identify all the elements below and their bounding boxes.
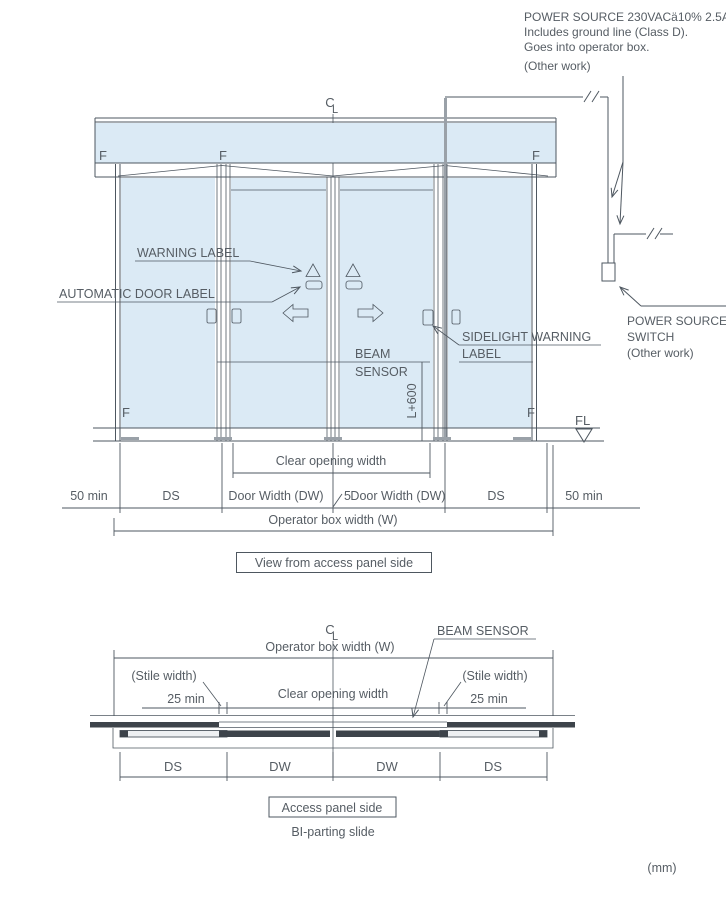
- margin-left-text: 50 min: [70, 489, 108, 503]
- glass-panels: [121, 178, 531, 428]
- clear-opening-text: Clear opening width: [276, 454, 387, 468]
- plan-left-door-leaf: [227, 731, 330, 738]
- power-note-line1: POWER SOURCE 230VACä10% 2.5A: [524, 10, 726, 24]
- plan-ds-left-text: DS: [164, 759, 182, 774]
- f-label-bottom-right: F: [527, 405, 535, 420]
- power-note-line4: (Other work): [524, 59, 591, 73]
- power-switch-box: [602, 263, 615, 281]
- plan-right-door-leaf: [336, 731, 440, 738]
- elevation-dimensions: Clear opening width 50 min DS Door Width…: [62, 443, 640, 536]
- power-switch-label-line3: (Other work): [627, 346, 694, 360]
- plan-ds-right-text: DS: [484, 759, 502, 774]
- stile-min-left-text: 25 min: [167, 692, 205, 706]
- automatic-door-installation-diagram: POWER SOURCE 230VACä10% 2.5A Includes gr…: [0, 0, 726, 903]
- plan-dimensions-bottom: DS DW DW DS: [120, 752, 547, 781]
- elevation-caption: View from access panel side: [237, 553, 432, 573]
- plan-subtitle-text: BI-parting slide: [291, 825, 374, 839]
- left-door-glass: [231, 178, 326, 428]
- wire-break-slash: [592, 91, 599, 102]
- plan-operator-box-text: Operator box width (W): [265, 640, 394, 654]
- plan-clear-opening-text: Clear opening width: [278, 687, 389, 701]
- plan-dimensions-top: Operator box width (W) (Stile width) 25 …: [114, 640, 553, 716]
- stile-leader-left: [203, 682, 221, 706]
- elevation-caption-text: View from access panel side: [255, 556, 413, 570]
- sidelight-end-cap: [120, 731, 128, 738]
- switch-label-leader: [620, 287, 641, 306]
- ds-left-text: DS: [162, 489, 179, 503]
- plan-beam-sensor-leader: [413, 639, 434, 717]
- plan-caption-text: Access panel side: [282, 801, 383, 815]
- ds-right-text: DS: [487, 489, 504, 503]
- plan-assembly: [90, 716, 575, 749]
- beam-height-text: L+600: [405, 383, 419, 418]
- dw-left-text: Door Width (DW): [228, 489, 323, 503]
- beam-sensor-text2: SENSOR: [355, 365, 408, 379]
- plan-view: C L BEAM SENSOR Operator box width (W) (…: [90, 622, 575, 839]
- plan-left-sidelight: [120, 731, 227, 738]
- margin-right-text: 50 min: [565, 489, 603, 503]
- stile-width-right-text: (Stile width): [462, 669, 527, 683]
- right-door-glass: [340, 178, 433, 428]
- power-note-line3: Goes into operator box.: [524, 40, 649, 54]
- beam-sensor-text1: BEAM: [355, 347, 390, 361]
- plan-dw-right-text: DW: [376, 759, 398, 774]
- right-sidelight-glass: [448, 178, 531, 428]
- automatic-door-label-text: AUTOMATIC DOOR LABEL: [59, 287, 215, 301]
- f-label-transom-left: F: [99, 148, 107, 163]
- plan-right-sidelight: [440, 731, 547, 738]
- sidelight-end-cap: [219, 731, 227, 738]
- track-left-segment: [90, 722, 219, 728]
- transom-glass: [95, 123, 556, 163]
- plan-dw-left-text: DW: [269, 759, 291, 774]
- drawing-page: POWER SOURCE 230VACä10% 2.5A Includes gr…: [0, 0, 726, 903]
- power-note-line2: Includes ground line (Class D).: [524, 25, 688, 39]
- plan-caption: Access panel side BI-parting slide: [269, 797, 396, 839]
- f-label-transom-right: F: [532, 148, 540, 163]
- dw-right-text: Door Width (DW): [350, 489, 445, 503]
- sidelight-warning-text1: SIDELIGHT WARNING: [462, 330, 591, 344]
- sidelight-end-cap: [440, 731, 448, 738]
- stile-min-right-text: 25 min: [470, 692, 508, 706]
- fl-label: FL: [575, 413, 590, 428]
- power-source-note: POWER SOURCE 230VACä10% 2.5A Includes gr…: [524, 10, 726, 73]
- elevation-view: C L: [57, 95, 640, 573]
- track-right-segment: [447, 722, 575, 728]
- operator-box-width-text: Operator box width (W): [268, 513, 397, 527]
- wire-break-slash: [647, 228, 654, 239]
- sidelight-warning-text2: LABEL: [462, 347, 501, 361]
- units-label: (mm): [647, 861, 676, 875]
- floor-level-marker: [576, 429, 592, 442]
- power-switch-label-line1: POWER SOURCE: [627, 314, 726, 328]
- f-label-bottom-left: F: [122, 405, 130, 420]
- power-switch-label-line2: SWITCH: [627, 330, 674, 344]
- f-label-transom-mid: F: [219, 148, 227, 163]
- operator-box-transom: [95, 118, 556, 177]
- warning-label-text: WARNING LABEL: [137, 246, 239, 260]
- wire-break-slash: [584, 91, 591, 102]
- gap-leader-slash: [333, 494, 342, 507]
- left-sidelight-glass: [121, 178, 215, 428]
- stile-width-left-text: (Stile width): [131, 669, 196, 683]
- sidelight-end-cap: [539, 731, 547, 738]
- plan-beam-sensor-text: BEAM SENSOR: [437, 624, 529, 638]
